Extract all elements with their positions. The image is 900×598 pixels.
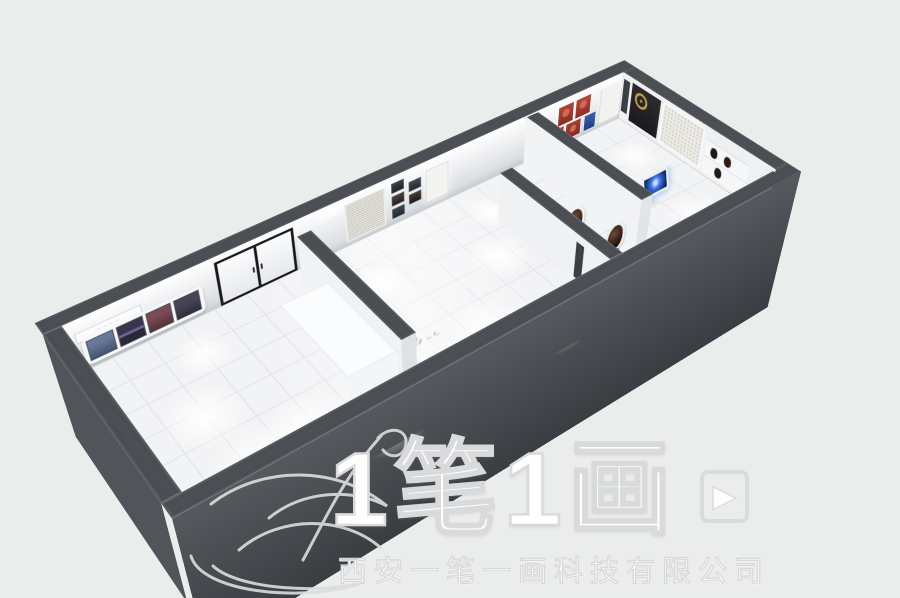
lit-corner-panel [598,80,622,124]
sign-glyphs: ···· [624,83,628,96]
photo-column [391,179,405,220]
gold-emblem-icon: ✦ [634,90,648,112]
exhibition-hall-render: ‥‥‥‥ [0,0,900,598]
lit-display-panel [426,160,449,203]
sign-glyphs: ···· [577,246,581,260]
artifact [714,166,722,180]
photo-column [409,177,422,205]
photo-panel [409,189,421,204]
door-handle [260,263,263,269]
photo-panel [173,289,202,320]
door-handle [252,267,255,273]
artifact [710,147,718,161]
photo-panel [145,302,175,333]
photo-panel [392,204,405,219]
exhibition-building: ‥‥‥‥ [51,106,790,567]
3d-scene: ‥‥‥‥ [0,0,900,598]
door-panel-left [217,248,259,303]
artifact [723,155,732,169]
